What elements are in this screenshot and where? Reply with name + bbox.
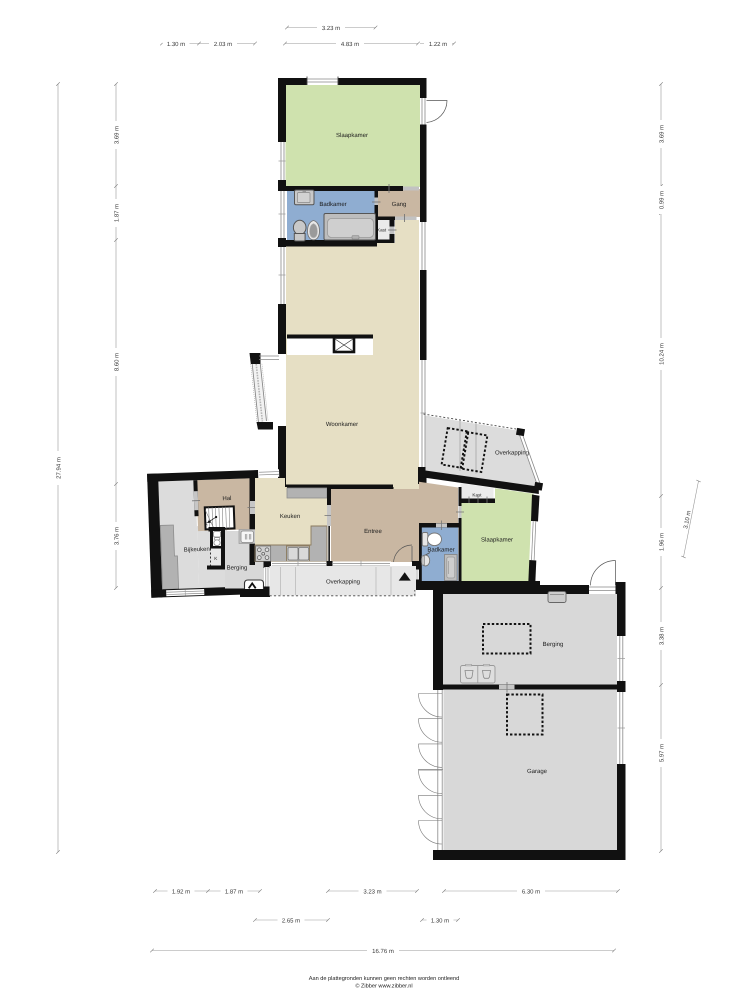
svg-text:Aan de plattegronden kunnen ge: Aan de plattegronden kunnen geen rechten… [309, 975, 460, 982]
svg-text:10.24 m: 10.24 m [659, 343, 666, 365]
svg-text:27.94 m: 27.94 m [56, 457, 63, 479]
svg-text:8.60 m: 8.60 m [114, 353, 121, 371]
svg-text:1.30 m: 1.30 m [431, 918, 449, 925]
svg-text:5.97 m: 5.97 m [659, 744, 666, 762]
svg-text:Slaapkamer: Slaapkamer [481, 537, 513, 544]
svg-text:Badkamer: Badkamer [427, 547, 454, 554]
svg-text:3.23 m: 3.23 m [322, 25, 340, 32]
svg-text:1.87 m: 1.87 m [225, 889, 243, 896]
svg-text:16.76 m: 16.76 m [372, 948, 394, 955]
svg-text:3.69 m: 3.69 m [659, 125, 666, 143]
svg-text:2.03 m: 2.03 m [214, 41, 232, 48]
svg-text:© Zibber www.zibber.nl: © Zibber www.zibber.nl [355, 983, 412, 990]
svg-text:Keuken: Keuken [280, 513, 300, 520]
svg-text:0.99 m: 0.99 m [659, 191, 666, 209]
svg-text:3.38 m: 3.38 m [659, 627, 666, 645]
svg-text:Badkamer: Badkamer [319, 201, 346, 208]
svg-text:Overkapping: Overkapping [495, 450, 529, 457]
svg-text:Gang: Gang [392, 201, 407, 208]
svg-text:Kast: Kast [377, 228, 387, 233]
svg-text:Bijkeuken: Bijkeuken [184, 546, 210, 554]
svg-text:Entree: Entree [364, 528, 382, 535]
svg-text:1.96 m: 1.96 m [659, 533, 666, 551]
svg-text:Berging: Berging [543, 641, 564, 648]
svg-text:1.92 m: 1.92 m [172, 889, 190, 896]
svg-text:6.30 m: 6.30 m [522, 889, 540, 896]
svg-text:4.83 m: 4.83 m [341, 41, 359, 48]
svg-text:1.30 m: 1.30 m [167, 41, 185, 48]
svg-text:3.69 m: 3.69 m [114, 126, 121, 144]
svg-text:Hal: Hal [222, 495, 231, 502]
svg-text:Overkapping: Overkapping [326, 579, 360, 586]
svg-text:Woonkamer: Woonkamer [326, 421, 358, 428]
svg-text:1.22 m: 1.22 m [429, 41, 447, 48]
svg-text:2.65 m: 2.65 m [282, 918, 300, 925]
svg-text:Berging: Berging [227, 565, 248, 572]
svg-text:Garage: Garage [527, 768, 548, 775]
svg-text:3.23 m: 3.23 m [363, 889, 381, 896]
svg-text:1.87 m: 1.87 m [114, 204, 121, 222]
svg-text:Kast: Kast [472, 493, 482, 498]
svg-text:Slaapkamer: Slaapkamer [336, 132, 368, 139]
svg-text:3.76 m: 3.76 m [114, 527, 121, 545]
